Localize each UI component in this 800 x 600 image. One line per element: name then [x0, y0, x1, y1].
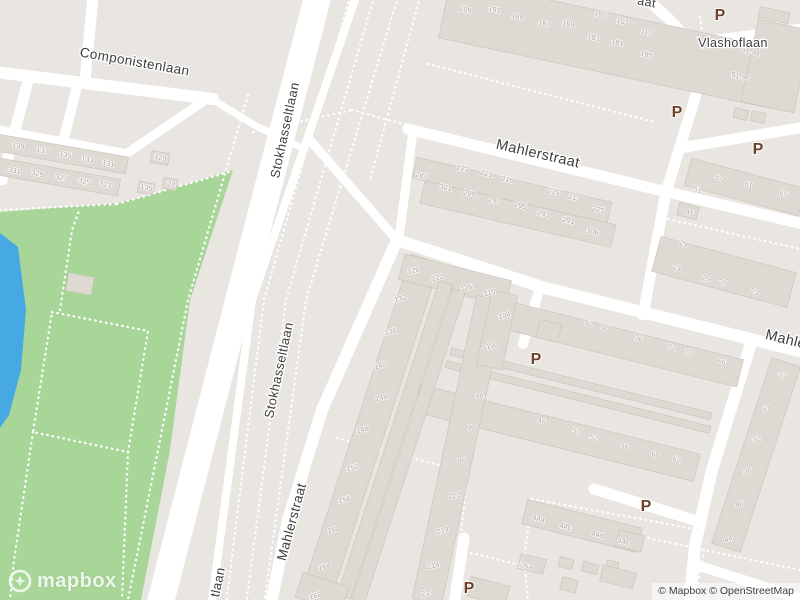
house-number: 168 — [308, 590, 322, 600]
house-number: 28 — [167, 178, 177, 188]
parking-icon: P — [531, 351, 542, 368]
map-svg: 1391371351331313313293273253231291352820… — [0, 0, 800, 600]
parking-icon: P — [672, 104, 683, 121]
street-label: Vlashoflaan — [698, 36, 768, 50]
mapbox-logo[interactable]: mapbox — [8, 569, 117, 593]
mapbox-logo-icon — [8, 569, 32, 593]
parking-icon: P — [753, 141, 764, 158]
parking-icon: P — [715, 7, 726, 24]
map-attribution[interactable]: © Mapbox © OpenStreetMap — [652, 583, 800, 600]
parking-icon: P — [464, 580, 475, 597]
mapbox-logo-text: mapbox — [37, 570, 117, 593]
parking-icon: P — [641, 498, 652, 515]
map-canvas[interactable]: 1391371351331313313293273253231291352820… — [0, 0, 800, 600]
